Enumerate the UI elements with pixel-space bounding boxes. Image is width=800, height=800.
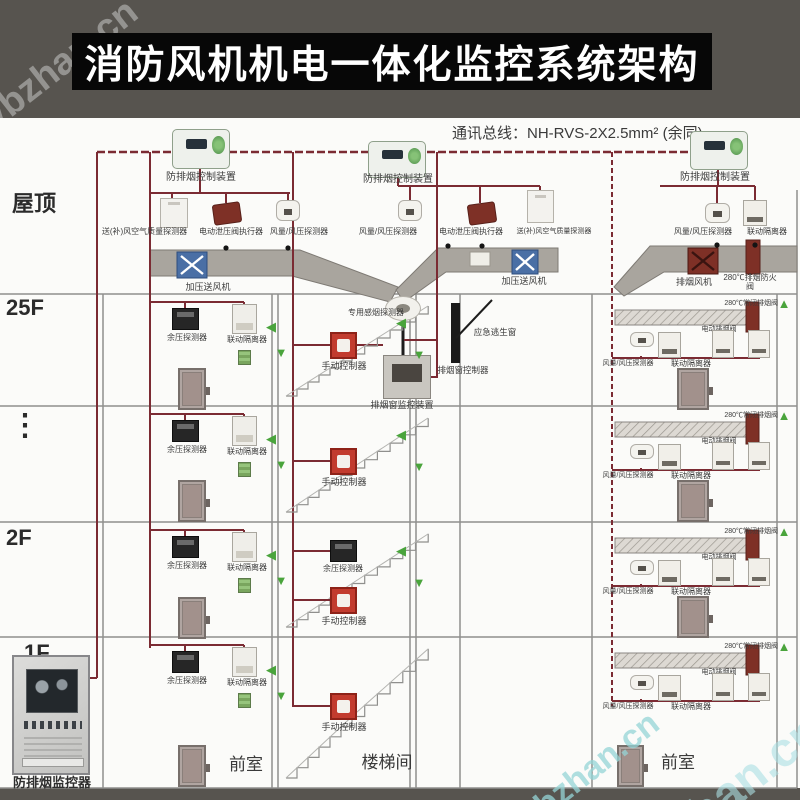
arrow-left-icon: ◀ (392, 428, 410, 441)
residual-pressure-detector (172, 308, 199, 330)
air-quality-detector-mid (527, 190, 554, 223)
manual-controller-label: 手动控制器 (312, 478, 376, 488)
room-label-front-right: 前室 (650, 754, 706, 772)
arrow-left-icon: ◀ (262, 320, 280, 333)
linkage-isolator-roof-label: 联动隔离器 (738, 228, 796, 237)
airflow-detector-floor-label: 风量/风压探测器 (594, 703, 662, 711)
elevator-door-left (178, 368, 206, 410)
smoke-control-unit-left (172, 129, 230, 169)
floor-label-2f: 2F (6, 526, 66, 550)
linkage-isolator-b (712, 558, 734, 586)
relief-valve-actuator-left (212, 201, 243, 226)
arrow-up-icon: ▲ (775, 640, 793, 653)
residual-pressure-detector-label: 余压探测器 (152, 677, 222, 686)
manual-controller-label: 手动控制器 (312, 362, 376, 372)
manual-controller (330, 587, 357, 614)
air-quality-detector-mid-label: 送(补)风空气质量探测器 (508, 228, 600, 236)
right-branch-wire (612, 356, 760, 358)
linkage-module (238, 350, 251, 365)
nc-exhaust-valve-label: 280℃常闭排烟阀 (718, 528, 778, 536)
smoke-window-controller-label: 排烟窗控制器 (430, 366, 496, 375)
smoke-control-unit-right-label: 防排烟控制装置 (670, 173, 760, 184)
smoke-exhaust-fan-icon (688, 248, 718, 274)
airflow-detector-floor-label: 风量/风压探测器 (594, 588, 662, 596)
emergency-escape-window-label: 应急逃生窗 (464, 328, 526, 337)
fire-damper-280-label: 280℃排烟防火阀 (722, 274, 778, 291)
elevator-door-right (617, 745, 644, 787)
elevator-door-right (677, 596, 709, 638)
arrow-down-icon: ▼ (410, 460, 428, 473)
exhaust-duct (615, 310, 757, 325)
arrow-down-icon: ▼ (272, 689, 290, 702)
arrow-down-icon: ▼ (272, 574, 290, 587)
smoke-window-monitor-label: 排烟窗监控装置 (346, 401, 458, 411)
arrow-left-icon: ◀ (392, 316, 410, 329)
panel-screen (26, 669, 78, 713)
air-quality-detector-left (160, 198, 188, 228)
relief-valve-actuator-mid (467, 201, 498, 226)
panel-button-rows (24, 735, 82, 757)
residual-pressure-detector-stair (330, 540, 357, 562)
right-branch-wire (612, 468, 760, 470)
linkage-isolator-a (658, 444, 681, 470)
airflow-detector-left (276, 200, 300, 221)
arrow-down-icon: ▼ (410, 348, 428, 361)
airflow-detector-right-label: 风量/风压探测器 (666, 228, 740, 237)
airflow-detector-floor (630, 332, 654, 347)
arrow-up-icon: ▲ (775, 525, 793, 538)
arrow-left-icon: ◀ (262, 548, 280, 561)
smoke-control-unit-left-label: 防排烟控制装置 (156, 173, 246, 184)
residual-pressure-detector (172, 651, 199, 673)
airflow-detector-mid-label: 风量/风压探测器 (342, 228, 434, 237)
nc-exhaust-valve-label: 280℃常闭排烟阀 (718, 412, 778, 420)
linkage-isolator-a (658, 332, 681, 358)
nc-exhaust-valve-label: 280℃常闭排烟阀 (718, 300, 778, 308)
exhaust-duct (615, 653, 757, 668)
arrow-up-icon: ▲ (775, 297, 793, 310)
linkage-isolator-b (712, 330, 734, 358)
smoke-monitor-panel-label: 防排烟监控器 (2, 776, 102, 790)
linkage-module (238, 693, 251, 708)
panel-led-row (24, 721, 82, 729)
linkage-isolator-a (658, 675, 681, 701)
air-quality-detector-left-label: 送(补)风空气质量探测器 (92, 228, 197, 237)
manual-controller-label: 手动控制器 (312, 617, 376, 627)
smoke-exhaust-fan-label: 排烟风机 (664, 278, 724, 288)
linkage-isolator-c (748, 673, 770, 701)
elevator-door-left (178, 480, 206, 522)
airflow-detector-floor (630, 675, 654, 690)
residual-pressure-detector-label: 余压探测器 (152, 562, 222, 571)
airflow-detector-floor (630, 444, 654, 459)
linkage-isolator (232, 416, 257, 446)
residual-pressure-detector-stair-label: 余压探测器 (310, 565, 376, 574)
airflow-detector-floor (630, 560, 654, 575)
manual-controller (330, 448, 357, 475)
exhaust-duct (615, 422, 757, 437)
right-branch-wire (612, 584, 760, 586)
arrow-up-icon: ▲ (775, 409, 793, 422)
residual-pressure-detector-label: 余压探测器 (152, 446, 222, 455)
elevator-door-left (178, 597, 206, 639)
arrow-left-icon: ◀ (392, 544, 410, 557)
residual-pressure-detector (172, 536, 199, 558)
linkage-isolator (232, 532, 257, 562)
smoke-monitor-panel (12, 655, 90, 775)
linkage-isolator-label: 联动隔离器 (216, 679, 278, 688)
arrow-down-icon: ▼ (410, 576, 428, 589)
floor-label-roof: 屋顶 (12, 192, 72, 216)
room-label-stairwell: 楼梯间 (354, 754, 420, 772)
panel-name-plate (22, 758, 84, 767)
linkage-isolator-label: 联动隔离器 (216, 448, 278, 457)
linkage-isolator-c (748, 330, 770, 358)
linkage-isolator-roof-right (743, 200, 767, 226)
relief-valve-actuator-left-label: 电动泄压阀执行器 (196, 228, 266, 237)
linkage-isolator (232, 647, 257, 677)
floor-label-25f: 25F (6, 296, 66, 320)
exhaust-duct (615, 538, 757, 553)
screenshot-root: ybzhan.cn 消防风机机电一体化监控系统架构 (0, 0, 800, 800)
linkage-isolator-c (748, 558, 770, 586)
smoke-control-unit-mid-label: 防排烟控制装置 (352, 175, 444, 186)
manual-controller (330, 332, 357, 359)
airflow-detector-floor-label: 风量/风压探测器 (594, 360, 662, 368)
arrow-down-icon: ▼ (272, 346, 290, 359)
arrow-down-icon: ▼ (272, 458, 290, 471)
room-label-front-left: 前室 (218, 756, 274, 774)
arrow-left-icon: ◀ (262, 432, 280, 445)
airflow-detector-left-label: 风量/风压探测器 (264, 228, 334, 237)
airflow-detector-mid (398, 200, 422, 221)
linkage-module (238, 578, 251, 593)
elevator-door-left (178, 745, 206, 787)
pressurized-fan-left-label: 加压送风机 (168, 283, 248, 293)
linkage-isolator-b (712, 442, 734, 470)
residual-pressure-detector-label: 余压探测器 (152, 334, 222, 343)
pressurized-fan-left-icon (177, 252, 207, 278)
elevator-door-right (677, 368, 709, 410)
nc-exhaust-valve-label: 280℃常闭排烟阀 (718, 643, 778, 651)
linkage-isolator-label: 联动隔离器 (216, 336, 278, 345)
floor-label-ellipsis: ⋮ (10, 410, 36, 442)
linkage-isolator-label: 联动隔离器 (216, 564, 278, 573)
residual-pressure-detector (172, 420, 199, 442)
linkage-isolator-a (658, 560, 681, 586)
linkage-isolator-b (712, 673, 734, 701)
manual-controller-label: 手动控制器 (312, 723, 376, 733)
manual-controller (330, 693, 357, 720)
smoke-control-unit-mid (368, 141, 426, 178)
linkage-module (238, 462, 251, 477)
right-branch-wire (612, 699, 760, 701)
linkage-isolator-floor-label: 联动隔离器 (662, 703, 720, 712)
pressurized-fan-mid-label: 加压送风机 (488, 277, 560, 287)
arrow-left-icon: ◀ (262, 663, 280, 676)
pressurized-fan-mid-icon (512, 250, 538, 274)
smoke-control-unit-right (690, 131, 748, 170)
linkage-isolator (232, 304, 257, 334)
relief-valve-actuator-mid-label: 电动泄压阀执行器 (434, 228, 508, 237)
airflow-detector-floor-label: 风量/风压探测器 (594, 472, 662, 480)
elevator-door-right (677, 480, 709, 522)
airflow-detector-right (705, 203, 730, 223)
linkage-isolator-c (748, 442, 770, 470)
